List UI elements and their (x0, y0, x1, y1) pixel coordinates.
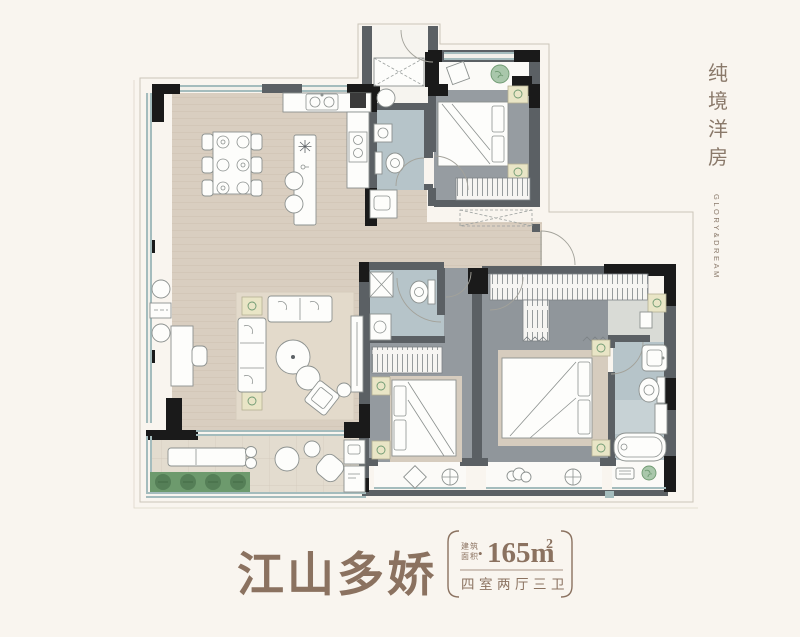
stool (640, 312, 652, 328)
brand-subtitle: GLORY&DREAM (712, 194, 721, 280)
bracket-left (448, 531, 459, 597)
side-table (242, 297, 262, 315)
cabinet (344, 440, 365, 464)
dining-table (213, 132, 251, 194)
bar-stool (285, 172, 303, 190)
bed (502, 358, 592, 438)
fridge (350, 93, 366, 108)
area-value: 165m (487, 537, 555, 569)
toilet (410, 281, 428, 303)
nightstand (372, 377, 390, 395)
basket (616, 468, 634, 479)
desk-chair (192, 346, 207, 366)
planter (152, 280, 170, 298)
shower-bench (655, 404, 667, 434)
nightstand (592, 440, 610, 456)
brand-char-2: 境 (708, 90, 728, 113)
brand-char-1: 纯 (708, 62, 728, 85)
toilet (639, 378, 659, 402)
hall-door-arc (541, 231, 575, 265)
area-superscript: 2 (546, 537, 553, 552)
shoe-cabinet (374, 58, 424, 86)
branding-vertical: 纯 境 洋 房 GLORY&DREAM (708, 62, 728, 280)
planter (152, 324, 170, 342)
layout-text: 四室两厅三卫 (461, 576, 569, 592)
cabinet (344, 466, 365, 492)
entry-stool (377, 89, 395, 107)
nightstand (508, 86, 528, 103)
wardrobe (372, 347, 442, 373)
brand-char-4: 房 (708, 146, 728, 169)
wardrobe-top (490, 274, 648, 300)
plant-icon (491, 65, 509, 83)
area-label-bottom: 面积 (461, 551, 479, 561)
brand-char-3: 洋 (708, 118, 728, 141)
nightstand (372, 441, 390, 459)
lounge-chair (168, 448, 246, 466)
hallway (541, 231, 575, 265)
sink (370, 314, 391, 340)
bullet: • (478, 546, 483, 561)
sink (374, 124, 392, 142)
desk (171, 326, 193, 386)
plan-title: 江山多娇 (237, 550, 437, 602)
area-label-top: 建筑 (461, 541, 479, 551)
nightstand (648, 294, 666, 312)
round-chair (275, 447, 299, 471)
hallway-floor (365, 222, 542, 268)
side-table (242, 392, 262, 410)
floor-plan: 纯 境 洋 房 GLORY&DREAM 江山多娇 建筑 面积 • 165m 2 … (0, 0, 800, 637)
dining-set (202, 132, 262, 196)
nightstand (592, 340, 610, 356)
title-block: 江山多娇 建筑 面积 • 165m 2 四室两厅三卫 (237, 531, 572, 602)
side-table-round (337, 383, 351, 397)
bed (392, 380, 456, 456)
floorplan-poster: { "branding": { "chars": ["纯", "境", "洋",… (0, 0, 800, 637)
flower-icon (299, 140, 312, 153)
plant-icon (642, 466, 656, 480)
wardrobe-side (523, 300, 549, 341)
small-table (304, 441, 320, 457)
bathroom1-floor (373, 110, 424, 190)
bar-stool (285, 195, 303, 213)
